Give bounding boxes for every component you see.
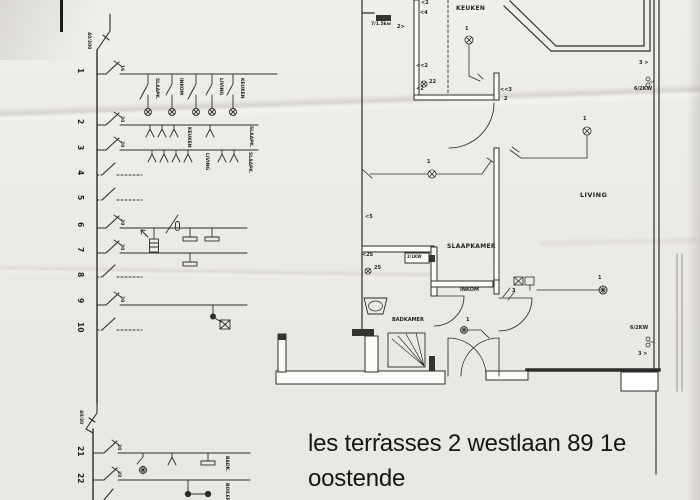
- circuit6-symbols: [141, 215, 219, 247]
- light-id-bedroom: 1: [427, 160, 430, 165]
- door-arcs: [434, 103, 532, 376]
- outer-terrace-line: [677, 254, 682, 391]
- circuit22-boiler: [188, 480, 208, 494]
- washbasin: [364, 298, 387, 314]
- breaker-rating-7: 20: [119, 244, 124, 250]
- light-id-hall: 1: [466, 318, 469, 323]
- drawing-linework: [0, 0, 700, 500]
- light-id-living-top: 1: [583, 117, 586, 122]
- balcony-box: [621, 372, 658, 391]
- socket-label-hall-n: 2: [504, 97, 507, 102]
- socket-label-kitchen-c: <<2: [416, 64, 428, 69]
- switch-label-kitchen: 2>: [397, 25, 405, 30]
- branch-label-inkom: INKOM: [178, 78, 183, 95]
- socket-symbols-row3: [148, 150, 238, 162]
- breaker-rating-22: 20: [116, 471, 121, 477]
- socket-group-keuken: KEUKEN: [186, 127, 191, 148]
- socket-label-kitchen-b: <4: [420, 11, 428, 16]
- circuit21-symbols: [137, 453, 215, 465]
- circuit-number-5: 5: [77, 195, 85, 200]
- branch-label-keuken: KEUKEN: [239, 78, 244, 99]
- spot-label-kitchen: 22: [429, 80, 436, 85]
- junction-boxes: [514, 77, 650, 347]
- breaker-rating-21: 20: [116, 444, 121, 450]
- circuit-number-6: 6: [77, 222, 85, 227]
- lamp-symbols: [145, 109, 237, 116]
- bus-line: [93, 50, 97, 500]
- branch-label-slaapk: SLAAPK.: [154, 78, 159, 100]
- power-label-living-bottom: 6/2KW: [630, 326, 648, 331]
- circuit-number-8: 8: [77, 272, 85, 277]
- light-id-kitchen: 1: [465, 27, 468, 32]
- circuit22-label: BOILER: [224, 483, 229, 500]
- breaker-rating-3: 20: [119, 141, 124, 147]
- circuit-number-9: 9: [77, 298, 85, 303]
- room-label-kitchen: KEUKEN: [456, 6, 485, 12]
- circuit-number-22: 22: [77, 473, 85, 483]
- socket-label-kitchen-d: <2: [416, 87, 424, 92]
- spot-label-bathroom: 25: [374, 266, 381, 271]
- switch-label-living-top: 3 >: [639, 61, 648, 66]
- light-symbols: [365, 36, 607, 334]
- circuit-number-10: 10: [77, 322, 85, 332]
- washer-symbol: [150, 239, 159, 252]
- main-rcd-label: 40/300: [86, 32, 91, 49]
- breaker-rating-9: 20: [119, 296, 124, 302]
- switch-label-living-bottom: 3 >: [638, 352, 647, 357]
- hood-symbol: [376, 15, 391, 21]
- floor-plan: [276, 0, 682, 474]
- address-line-2: oostende: [308, 465, 405, 493]
- switch-label-hall: 3: [512, 289, 515, 294]
- socket-label-bathroom: <25: [362, 253, 373, 258]
- socket-label-kitchen-a: <2: [421, 1, 429, 6]
- circuit-number-2: 2: [77, 119, 85, 124]
- shower-rays: [392, 333, 424, 366]
- breaker-rating-6: 20: [119, 219, 124, 225]
- scanned-floorplan-document: 40/300 40/30 1 2 3 4 5 6 7 8 9 10 21 22 …: [0, 0, 700, 500]
- socket-label-hall: <<3: [500, 88, 512, 93]
- sub-rcd-label: 40/30: [78, 410, 83, 424]
- socket-group-living: LIVING: [204, 153, 209, 170]
- sub-breaker: [86, 403, 97, 433]
- room-label-bedroom: SLAAPKAMER: [447, 244, 496, 250]
- socket-label-bedroom: <5: [365, 215, 373, 220]
- light-id-living-bottom: 1: [598, 276, 601, 281]
- address-line-1: les terrasses 2 westlaan 89 1e: [308, 430, 626, 458]
- circuit7-symbols: [183, 253, 197, 262]
- room-label-bathroom: BADKAMER: [392, 318, 424, 323]
- breaker-rating-1: 16: [119, 65, 124, 71]
- switch-capsule: [176, 222, 180, 231]
- outer-walls: [362, 0, 659, 370]
- room-label-living: LIVING: [580, 192, 607, 199]
- breaker-rating-2: 20: [119, 116, 124, 122]
- socket-group-slaapk1: SLAAPK.: [248, 126, 253, 148]
- power-label-hood: 7/1.5kw: [371, 23, 391, 28]
- circuit21-label: BADK.: [224, 456, 229, 472]
- circuit-number-3: 3: [77, 145, 85, 150]
- main-breaker: [97, 14, 110, 50]
- socket-symbols-row2: [146, 125, 214, 137]
- power-label-bedroom-heater: 2/1KW: [407, 255, 422, 259]
- branch-label-living: LIVING: [218, 78, 223, 95]
- socket-group-slaapk2: SLAAPK.: [247, 152, 252, 174]
- breaker-slashes: [102, 62, 119, 500]
- circuit-number-4: 4: [77, 170, 85, 175]
- circuit-number-7: 7: [77, 247, 85, 252]
- circuit-number-1: 1: [77, 68, 85, 73]
- power-label-living-top: 6/2KW: [634, 87, 652, 92]
- room-label-hall: INKOM: [460, 288, 479, 293]
- circuit-number-21: 21: [77, 446, 85, 456]
